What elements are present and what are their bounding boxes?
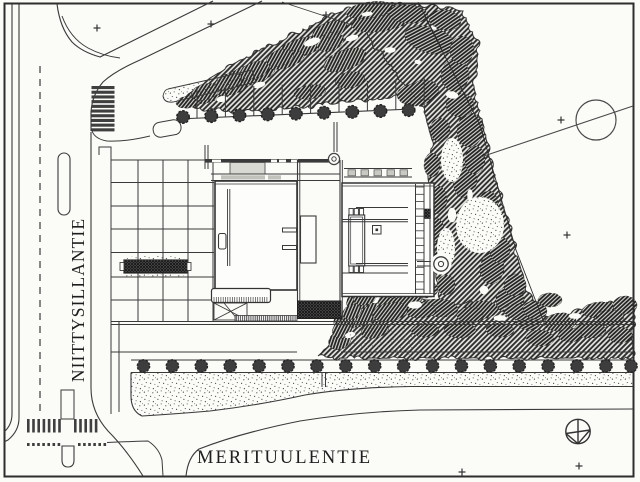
svg-text:NIITTYSILLANTIE: NIITTYSILLANTIE: [68, 218, 88, 382]
svg-text:MERITUULENTIE: MERITUULENTIE: [197, 448, 372, 468]
